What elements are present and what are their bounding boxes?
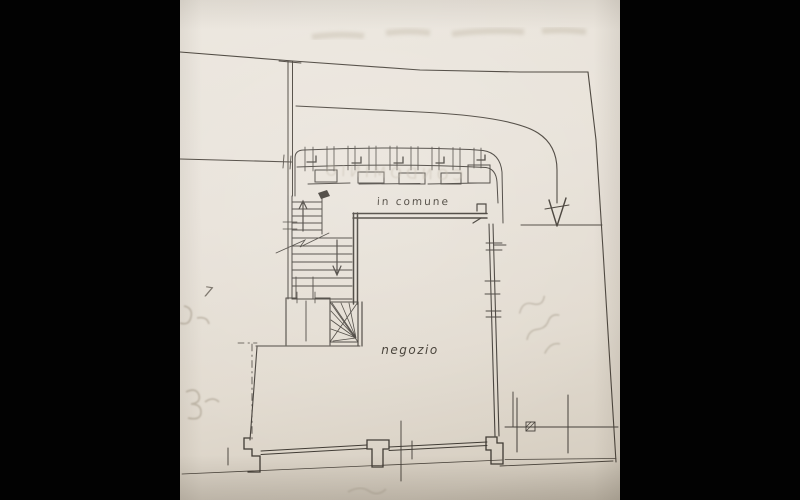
property-boundary [180, 52, 616, 474]
staircase [276, 190, 352, 299]
site-marks [505, 395, 618, 453]
label-common-area: in comune [377, 196, 451, 208]
pencil-scribble-right [512, 293, 571, 358]
facade-window-band [295, 146, 503, 223]
bleed-through-text: CONDOMINIO [321, 162, 463, 185]
screenshot-root: CONDOMINIO [0, 0, 800, 500]
label-shop: negozio [381, 343, 438, 357]
handwritten-mark: 7 [202, 284, 213, 301]
letterbox-left [0, 0, 180, 500]
shop-right-wall [485, 224, 506, 436]
floor-plan-drawing: CONDOMINIO [180, 0, 620, 500]
scanned-floor-plan-page: CONDOMINIO [180, 0, 620, 500]
shop-left-wall [238, 343, 360, 440]
letterbox-right [620, 0, 800, 500]
pencil-scribble-left [180, 306, 219, 419]
common-corridor-wall [353, 204, 487, 304]
winder-stair [330, 302, 362, 346]
storefront [228, 392, 513, 481]
landing-room [286, 292, 330, 345]
pencil-smudge-top [312, 30, 586, 37]
bleed-through-word: CONDOMINIO [321, 162, 463, 185]
pencil-smudge-bottom [348, 488, 386, 493]
